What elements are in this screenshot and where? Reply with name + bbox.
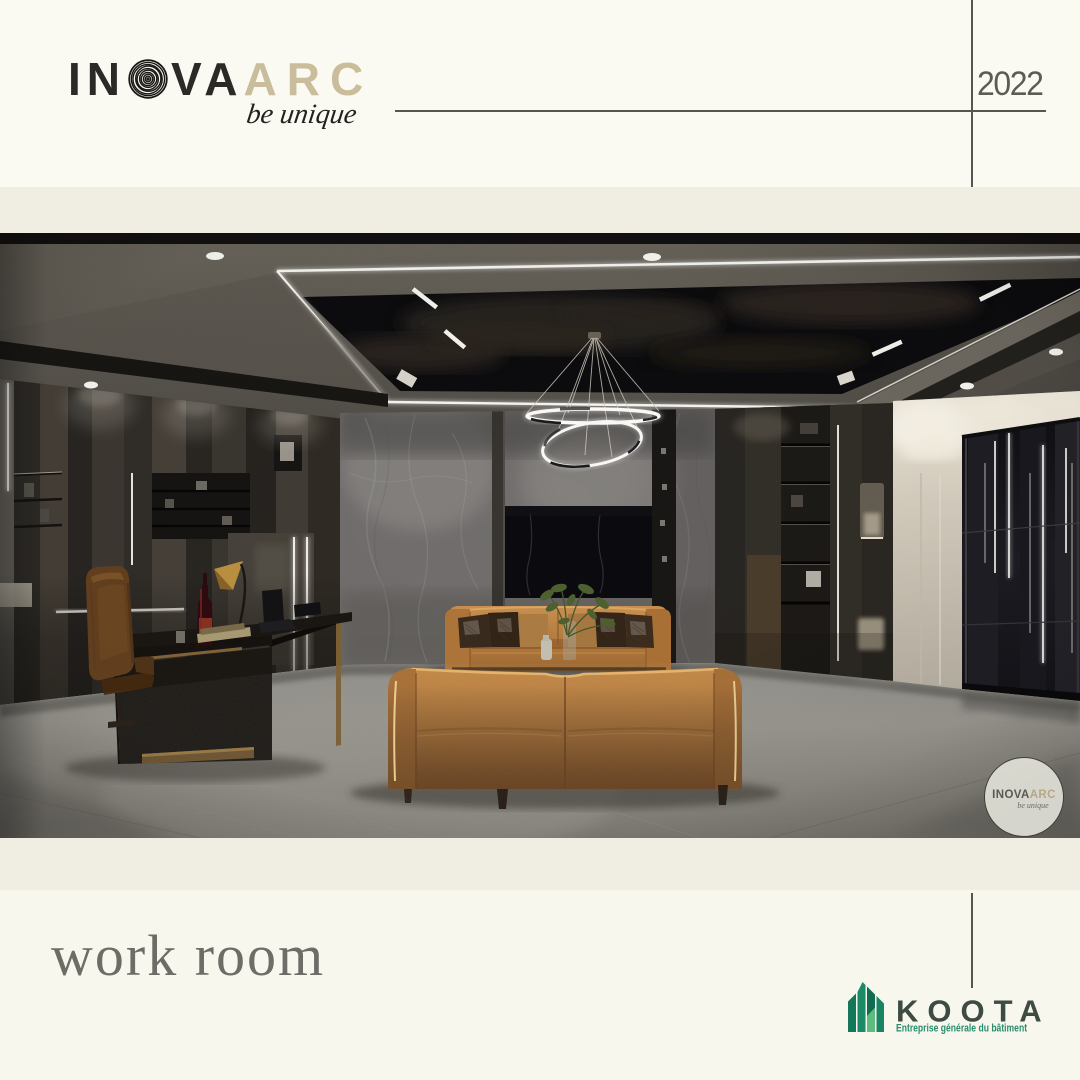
svg-text:Entreprise générale du bâtimen: Entreprise générale du bâtiment [896,1023,1028,1035]
